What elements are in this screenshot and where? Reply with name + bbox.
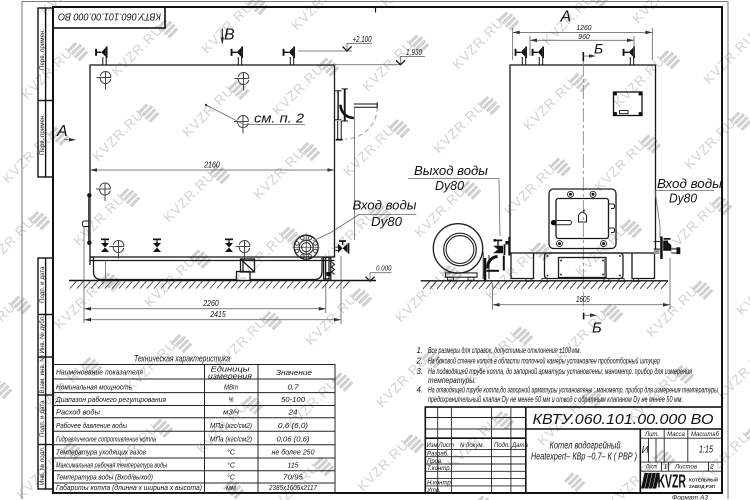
svg-text:2.: 2.	[416, 357, 424, 366]
svg-text:Температура уходящих газов: Температура уходящих газов	[56, 448, 146, 457]
svg-text:На боковой стенке котла в обла: На боковой стенке котла в области топочн…	[428, 357, 660, 366]
svg-text:2415: 2415	[209, 309, 226, 319]
svg-text:температуры.: температуры.	[428, 376, 476, 385]
svg-text:мм: мм	[226, 483, 237, 492]
svg-text:Т.контр.: Т.контр.	[427, 466, 451, 472]
svg-text:Н.контр.: Н.контр.	[427, 481, 452, 487]
svg-text:И: И	[642, 445, 650, 456]
svg-text:1260: 1260	[577, 23, 593, 32]
svg-text:0,7: 0,7	[288, 382, 300, 391]
svg-text:А: А	[560, 9, 572, 26]
svg-text:°С: °С	[227, 473, 235, 482]
svg-text:1,930: 1,930	[406, 47, 422, 57]
svg-text:0,06 (0,6): 0,06 (0,6)	[277, 435, 310, 444]
svg-text:Номинальная мощность: Номинальная мощность	[56, 382, 132, 391]
svg-text:Максимальная рабочая температу: Максимальная рабочая температура воды	[56, 461, 167, 470]
svg-text:Dy80: Dy80	[371, 215, 402, 229]
svg-text:2385х1605х2117: 2385х1605х2117	[268, 483, 317, 492]
svg-text:В: В	[224, 27, 235, 44]
svg-text:Габариты котла (длинна х ширин: Габариты котла (длинна х ширина х высота…	[56, 483, 202, 492]
svg-text:Гидравлическое сопротивление к: Гидравлическое сопротивление котла	[56, 435, 157, 444]
svg-text:4.: 4.	[417, 386, 424, 395]
svg-text:МВт: МВт	[224, 382, 238, 391]
svg-text:МПа (кгс/см2): МПа (кгс/см2)	[210, 421, 252, 430]
svg-text:Лит.: Лит.	[644, 432, 659, 438]
svg-text:На подводящей трубе котла, д: На подводящей трубе котла, до запорной а…	[428, 367, 693, 376]
svg-text:Температура воды (Вход/выход): Температура воды (Вход/выход)	[56, 473, 153, 482]
svg-text:Взам. инв. №: Взам. инв. №	[39, 355, 46, 394]
svg-text:2: 2	[709, 464, 714, 471]
svg-text:Инв. № дубл.: Инв. № дубл.	[39, 315, 46, 354]
svg-text:Вход воды: Вход воды	[657, 177, 722, 191]
svg-text:Техническая характеристика: Техническая характеристика	[134, 354, 230, 364]
svg-text:Лист: Лист	[438, 443, 454, 449]
svg-text:Утв.: Утв.	[426, 488, 441, 494]
svg-text:Б: Б	[592, 320, 602, 337]
svg-text:Б: Б	[594, 41, 603, 57]
svg-text:ЗАВОД РЭП: ЗАВОД РЭП	[689, 484, 716, 490]
svg-text:3.: 3.	[417, 367, 424, 376]
svg-text:°С: °С	[227, 461, 235, 470]
svg-text:Подп. и дата: Подп. и дата	[39, 400, 46, 437]
svg-text:KVZR: KVZR	[658, 470, 687, 491]
svg-text:1.: 1.	[417, 346, 424, 355]
svg-text:Все размеры для справок, допус: Все размеры для справок, допустимые откл…	[428, 346, 581, 355]
svg-text:+2,100: +2,100	[353, 34, 372, 44]
svg-text:%: %	[229, 395, 234, 404]
svg-text:0,6 (6,0): 0,6 (6,0)	[278, 421, 308, 430]
svg-text:Инв. № подл.: Инв. № подл.	[39, 446, 46, 485]
svg-text:2160: 2160	[203, 160, 220, 170]
svg-text:Перв. примен.: Перв. примен.	[39, 114, 46, 155]
svg-text:Масштаб: Масштаб	[691, 432, 720, 438]
svg-text:2260: 2260	[202, 298, 219, 308]
svg-text:Dy80: Dy80	[435, 179, 464, 193]
svg-text:Разраб.: Разраб.	[427, 452, 449, 458]
svg-text:не более 250: не более 250	[272, 448, 316, 457]
svg-text:КВТУ.060.101.00.000 ВО: КВТУ.060.101.00.000 ВО	[533, 412, 714, 428]
svg-text:°С: °С	[227, 448, 235, 457]
svg-text:Диапазон рабочего регулировани: Диапазон рабочего регулирования	[55, 395, 166, 404]
svg-text:1605: 1605	[576, 294, 590, 304]
svg-text:70/95: 70/95	[283, 473, 304, 482]
svg-text:МПа (кгс/см2): МПа (кгс/см2)	[210, 435, 252, 444]
svg-text:А: А	[56, 123, 68, 140]
svg-text:N докум.: N докум.	[460, 443, 484, 449]
svg-text:Значение: Значение	[276, 368, 312, 377]
svg-text:24: 24	[287, 408, 297, 417]
svg-text:Выход воды: Выход воды	[414, 164, 488, 178]
svg-text:см. п. 2: см. п. 2	[254, 112, 304, 126]
svg-text:0.000: 0.000	[376, 266, 392, 273]
svg-text:Подп.: Подп.	[494, 443, 510, 449]
svg-text:м3/ч: м3/ч	[223, 408, 239, 417]
svg-text:На отводящей трубе котла,до за: На отводящей трубе котла,до запорной арм…	[428, 386, 718, 395]
svg-text:1:15: 1:15	[699, 445, 713, 456]
svg-text:50-100: 50-100	[281, 395, 306, 404]
svg-text:Формат А3: Формат А3	[672, 494, 708, 500]
svg-text:Дата: Дата	[511, 443, 528, 449]
svg-text:Лист: Лист	[645, 464, 657, 471]
svg-text:Изм.: Изм.	[427, 443, 440, 449]
svg-text:Heatexpert– КВр –0,7– К ( РВР: Heatexpert– КВр –0,7– К ( РВР )	[531, 451, 637, 463]
svg-text:Перв. примен.: Перв. примен.	[39, 29, 46, 70]
svg-text:измерения: измерения	[208, 371, 252, 380]
svg-text:Наименование показателя: Наименование показателя	[56, 368, 143, 377]
svg-text:Рабочее давление воды: Рабочее давление воды	[56, 421, 127, 430]
svg-text:115: 115	[288, 461, 300, 470]
svg-text:КВТУ.060.101.00.000 ВО: КВТУ.060.101.00.000 ВО	[58, 11, 161, 23]
svg-text:Масса: Масса	[667, 432, 685, 438]
svg-text:Вход воды: Вход воды	[353, 199, 417, 213]
svg-text:Пров.: Пров.	[427, 459, 443, 465]
svg-text:Расход воды: Расход воды	[56, 408, 100, 417]
svg-text:Подп. и дата: Подп. и дата	[39, 266, 46, 303]
svg-text:960: 960	[578, 32, 590, 41]
svg-text:Dy80: Dy80	[669, 192, 697, 206]
svg-text:предохранительный клапан Dу н: предохранительный клапан Dу не менее 50 …	[428, 395, 683, 404]
